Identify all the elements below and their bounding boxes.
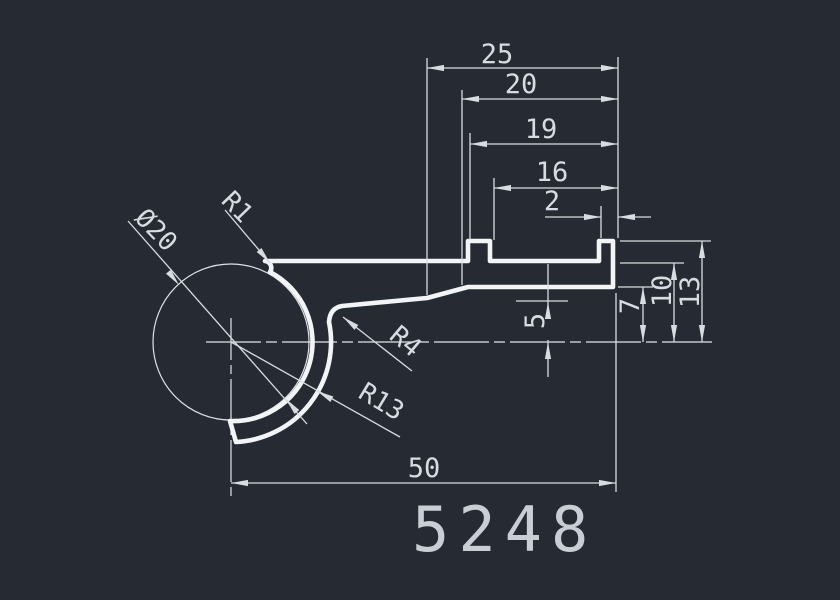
dim-label-13: 13 (675, 276, 706, 309)
dim-label-19: 19 (525, 114, 558, 145)
dim-label-7: 7 (615, 298, 646, 314)
dim-label-2: 2 (544, 186, 560, 217)
dim-label-20: 20 (505, 69, 538, 100)
cad-viewport: 25 20 19 16 2 7 10 13 5 50 Ø20 R1 R4 R13… (0, 0, 840, 600)
dim-label-50: 50 (408, 453, 441, 484)
cad-drawing: 25 20 19 16 2 7 10 13 5 50 Ø20 R1 R4 R13… (0, 0, 840, 600)
dim-label-25: 25 (481, 39, 514, 70)
part-number-text: 5248 (412, 493, 597, 566)
dim-label-16: 16 (536, 157, 569, 188)
dim-label-10: 10 (647, 275, 678, 308)
dim-label-5: 5 (520, 313, 551, 329)
